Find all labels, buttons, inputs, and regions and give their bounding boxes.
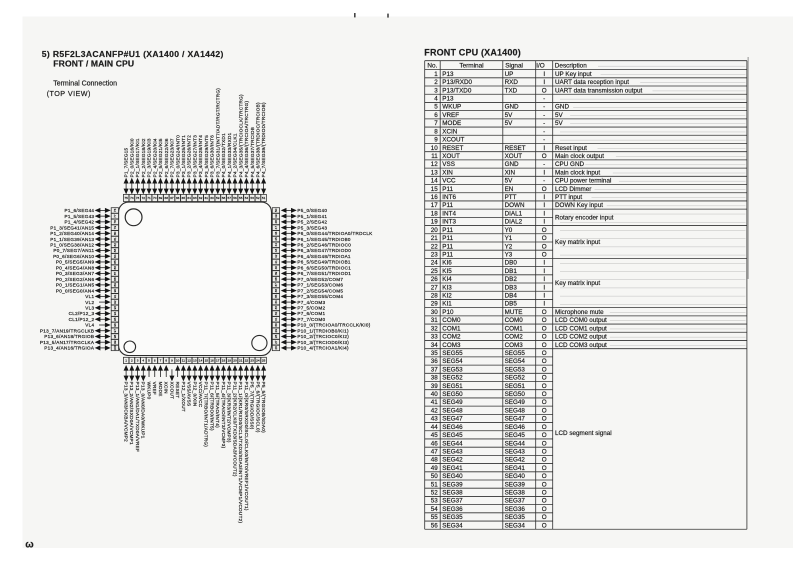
- svg-text:47: 47: [274, 226, 278, 230]
- svg-text:P2_6/SEG22/KI6: P2_6/SEG22/KI6: [164, 138, 169, 177]
- svg-text:19: 19: [431, 219, 439, 226]
- svg-text:XCIN: XCIN: [164, 382, 169, 394]
- svg-text:8: 8: [434, 128, 438, 135]
- svg-text:O: O: [542, 448, 547, 455]
- svg-text:INT3: INT3: [442, 219, 456, 226]
- svg-text:O: O: [542, 498, 547, 505]
- svg-text:O: O: [542, 186, 547, 193]
- svg-text:O: O: [542, 375, 547, 382]
- svg-text:55: 55: [431, 514, 439, 521]
- svg-text:90: 90: [113, 289, 117, 293]
- svg-text:P7_4/COM3: P7_4/COM3: [297, 300, 325, 305]
- svg-text:29: 29: [274, 329, 278, 333]
- svg-text:16: 16: [431, 194, 439, 201]
- svg-text:CPU GND: CPU GND: [555, 161, 584, 168]
- svg-text:5V: 5V: [505, 120, 514, 127]
- svg-text:INT4: INT4: [442, 210, 456, 217]
- svg-text:P6_7/SEG51/TRDIOD1: P6_7/SEG51/TRDIOD1: [297, 271, 351, 276]
- svg-text:P13_0/AN0/DA0/WKUP1: P13_0/AN0/DA0/WKUP1: [141, 382, 146, 439]
- svg-text:O: O: [542, 358, 547, 365]
- svg-text:P5_7/(TRGIOD/SS0): P5_7/(TRGIOD/SS0): [250, 382, 255, 430]
- svg-text:44: 44: [431, 424, 439, 431]
- svg-text:34: 34: [431, 342, 439, 349]
- svg-text:P13/TXD0: P13/TXD0: [442, 87, 472, 94]
- svg-text:SEG49: SEG49: [505, 399, 526, 406]
- svg-text:FRONT CPU (XA1400): FRONT CPU (XA1400): [424, 48, 521, 58]
- svg-text:46: 46: [274, 231, 278, 235]
- svg-text:O: O: [542, 366, 547, 373]
- svg-text:Y1: Y1: [505, 235, 513, 242]
- svg-text:SEG54: SEG54: [442, 358, 463, 365]
- svg-text:17: 17: [431, 202, 439, 209]
- svg-text:2: 2: [131, 359, 133, 363]
- svg-text:24: 24: [431, 260, 439, 267]
- svg-text:P10: P10: [442, 309, 454, 316]
- svg-text:25: 25: [431, 268, 439, 275]
- svg-text:P7_3/SEG55/COM4: P7_3/SEG55/COM4: [297, 294, 343, 299]
- svg-text:P11_4/(TRAIO/INT3/VCMP3): P11_4/(TRAIO/INT3/VCMP3): [221, 382, 226, 449]
- svg-text:SEG51: SEG51: [442, 383, 463, 390]
- svg-text:38: 38: [431, 375, 439, 382]
- svg-text:O: O: [542, 465, 547, 472]
- svg-text:P7_5/COM2: P7_5/COM2: [297, 306, 325, 311]
- svg-text:Key matrix input: Key matrix input: [555, 239, 600, 246]
- svg-text:XCOUT: XCOUT: [442, 137, 464, 144]
- svg-text:5: 5: [148, 359, 150, 363]
- svg-text:O: O: [542, 334, 547, 341]
- svg-text:98: 98: [113, 334, 117, 338]
- svg-text:51: 51: [262, 196, 266, 200]
- svg-text:3: 3: [434, 87, 438, 94]
- svg-text:7: 7: [434, 120, 438, 127]
- svg-text:O: O: [542, 342, 547, 349]
- svg-text:52: 52: [431, 490, 439, 497]
- svg-text:O: O: [542, 457, 547, 464]
- svg-text:43: 43: [431, 416, 439, 423]
- svg-text:71: 71: [147, 196, 151, 200]
- svg-text:KI3: KI3: [442, 284, 452, 291]
- svg-text:O: O: [542, 309, 547, 316]
- svg-text:O: O: [542, 440, 547, 447]
- svg-text:LCD COM0 output: LCD COM0 output: [555, 317, 607, 324]
- svg-text:O: O: [542, 235, 547, 242]
- svg-text:37: 37: [431, 366, 439, 373]
- svg-text:100: 100: [113, 345, 117, 350]
- svg-text:Reset input: Reset input: [555, 145, 587, 152]
- svg-text:26: 26: [431, 276, 439, 283]
- svg-text:31: 31: [274, 317, 278, 321]
- svg-text:P5_5/(TRGIOB/SDA0): P5_5/(TRGIOB/SDA0): [261, 382, 266, 434]
- svg-text:VL1: VL1: [85, 294, 94, 299]
- svg-text:7: 7: [160, 359, 162, 363]
- svg-text:CPU power terminal: CPU power terminal: [555, 178, 611, 185]
- svg-text:14: 14: [431, 178, 439, 185]
- svg-text:P5_2/SEG42: P5_2/SEG42: [297, 220, 327, 225]
- svg-text:P1_0/SEG38/AN12: P1_0/SEG38/AN12: [50, 242, 94, 247]
- svg-text:XOUT: XOUT: [505, 153, 523, 160]
- svg-text:30: 30: [274, 323, 278, 327]
- svg-text:5V: 5V: [505, 112, 514, 119]
- svg-text:51: 51: [431, 481, 439, 488]
- svg-text:31: 31: [431, 317, 439, 324]
- svg-text:I: I: [543, 260, 545, 267]
- svg-text:P1_2/SEG40/AN14: P1_2/SEG40/AN14: [50, 231, 94, 236]
- svg-text:SEG45: SEG45: [442, 432, 463, 439]
- svg-text:SEG46: SEG46: [442, 424, 463, 431]
- svg-text:45: 45: [431, 432, 439, 439]
- svg-text:DOWN Key input: DOWN Key input: [555, 202, 603, 209]
- svg-text:P11: P11: [442, 235, 453, 242]
- svg-text:96: 96: [113, 323, 117, 327]
- svg-text:SEG47: SEG47: [442, 416, 463, 423]
- svg-text:P13_2/AN2/SXD0A/VCMP1: P13_2/AN2/SXD0A/VCMP1: [129, 382, 134, 445]
- svg-text:SEG42: SEG42: [505, 457, 526, 464]
- svg-text:EN: EN: [505, 186, 514, 193]
- svg-text:P3_7/SEG31/(INT7/ADT/RGT/RCTRG: P3_7/SEG31/(INT7/ADT/RGT/RCTRG): [215, 88, 220, 178]
- svg-text:33: 33: [274, 306, 278, 310]
- svg-text:SEG42: SEG42: [442, 457, 463, 464]
- svg-text:95: 95: [113, 317, 117, 321]
- svg-text:11: 11: [431, 153, 438, 160]
- svg-text:INT6: INT6: [442, 194, 456, 201]
- svg-text:SEG36: SEG36: [505, 506, 526, 513]
- svg-text:O: O: [542, 243, 547, 250]
- svg-text:48: 48: [431, 457, 439, 464]
- svg-text:Microphone mute: Microphone mute: [555, 309, 604, 316]
- svg-text:DIAL2: DIAL2: [505, 219, 523, 226]
- svg-text:54: 54: [245, 196, 249, 200]
- svg-text:41: 41: [274, 260, 278, 264]
- svg-text:61: 61: [205, 196, 209, 200]
- svg-text:O: O: [542, 522, 547, 529]
- svg-text:Key matrix input: Key matrix input: [555, 280, 600, 287]
- svg-text:P0_6/SEG6/AN10: P0_6/SEG6/AN10: [53, 254, 94, 259]
- svg-text:P7_1/SEG53/COM6: P7_1/SEG53/COM6: [297, 283, 343, 288]
- svg-text:21: 21: [431, 235, 439, 242]
- svg-text:43: 43: [274, 249, 278, 253]
- svg-text:DIAL1: DIAL1: [505, 210, 523, 217]
- svg-text:15: 15: [205, 359, 209, 363]
- svg-text:CL1/P12_2: CL1/P12_2: [69, 317, 95, 322]
- svg-text:27: 27: [274, 340, 278, 344]
- svg-text:XIN: XIN: [442, 169, 453, 176]
- svg-text:SEG41: SEG41: [505, 465, 526, 472]
- svg-text:XCOUT: XCOUT: [169, 382, 174, 400]
- svg-text:-: -: [543, 178, 545, 185]
- svg-text:77: 77: [113, 214, 117, 218]
- svg-text:Y2: Y2: [505, 243, 513, 250]
- svg-text:P3_2/SEG26/INT2: P3_2/SEG26/INT2: [187, 135, 192, 178]
- svg-text:P0_7/SEG7/AN11: P0_7/SEG7/AN11: [53, 248, 94, 253]
- svg-text:-: -: [543, 137, 545, 144]
- svg-text:86: 86: [113, 266, 117, 270]
- svg-text:3: 3: [137, 359, 139, 363]
- svg-text:P1_6/SEG44: P1_6/SEG44: [64, 208, 94, 213]
- svg-text:SEG39: SEG39: [442, 481, 463, 488]
- svg-text:SEG48: SEG48: [442, 407, 463, 414]
- svg-text:MUTE: MUTE: [505, 309, 523, 316]
- svg-text:P11: P11: [442, 202, 453, 209]
- svg-text:DB2: DB2: [505, 276, 518, 283]
- svg-text:P0_5/SEG5/AN9: P0_5/SEG5/AN9: [56, 260, 95, 265]
- svg-text:P7_0/SEG52/COM7: P7_0/SEG52/COM7: [297, 277, 343, 282]
- svg-text:P12_1/XOUT: P12_1/XOUT: [181, 382, 186, 412]
- svg-text:5V: 5V: [505, 178, 514, 185]
- svg-text:9: 9: [434, 137, 438, 144]
- svg-text:12: 12: [187, 359, 191, 363]
- svg-text:58: 58: [222, 196, 226, 200]
- svg-text:O: O: [542, 490, 547, 497]
- svg-text:O: O: [542, 350, 547, 357]
- svg-text:P2_0/SEG16/KI0: P2_0/SEG16/KI0: [129, 138, 134, 177]
- svg-text:SEG40: SEG40: [442, 473, 463, 480]
- svg-text:P5_0/SEG40: P5_0/SEG40: [297, 208, 327, 213]
- svg-text:O: O: [542, 383, 547, 390]
- svg-text:63: 63: [193, 196, 197, 200]
- svg-text:6: 6: [154, 359, 156, 363]
- svg-text:P13: P13: [442, 96, 454, 103]
- svg-text:I: I: [543, 210, 545, 217]
- svg-text:P12_0/XIN: P12_0/XIN: [192, 382, 197, 407]
- svg-text:VREF: VREF: [442, 112, 459, 119]
- svg-text:SEG45: SEG45: [505, 432, 526, 439]
- svg-text:LCD Dimmer: LCD Dimmer: [555, 186, 591, 193]
- svg-text:19: 19: [228, 359, 232, 363]
- svg-text:VL3: VL3: [85, 306, 94, 311]
- svg-text:O: O: [542, 407, 547, 414]
- svg-text:P0_1/SEG1/AN5: P0_1/SEG1/AN5: [56, 283, 95, 288]
- svg-text:88: 88: [113, 277, 117, 281]
- svg-text:DB3: DB3: [505, 284, 518, 291]
- svg-text:13: 13: [193, 359, 197, 363]
- svg-text:52: 52: [256, 196, 260, 200]
- svg-text:74: 74: [130, 196, 134, 200]
- svg-text:P5_6/(TRGIOC/SCL0): P5_6/(TRGIOC/SCL0): [255, 382, 260, 433]
- svg-text:COM2: COM2: [442, 334, 461, 341]
- svg-text:P0_3/SEG3/AN7: P0_3/SEG3/AN7: [56, 271, 95, 276]
- svg-text:XCIN: XCIN: [442, 128, 457, 135]
- svg-text:FRONT / MAIN CPU: FRONT / MAIN CPU: [53, 59, 134, 69]
- svg-text:92: 92: [113, 300, 117, 304]
- svg-text:I: I: [543, 145, 545, 152]
- svg-text:60: 60: [210, 196, 214, 200]
- svg-text:SEG34: SEG34: [505, 522, 526, 529]
- svg-text:WKUP: WKUP: [442, 104, 461, 111]
- svg-text:36: 36: [274, 289, 278, 293]
- svg-text:35: 35: [431, 350, 439, 357]
- svg-text:O: O: [542, 481, 547, 488]
- svg-text:I: I: [543, 268, 545, 275]
- svg-text:GND: GND: [505, 161, 519, 168]
- svg-text:SEG37: SEG37: [505, 498, 526, 505]
- svg-text:P13_1/AN1/DA1/TXD0A/VREF: P13_1/AN1/DA1/TXD0A/VREF: [135, 382, 140, 453]
- svg-text:46: 46: [431, 440, 439, 447]
- svg-text:10: 10: [431, 145, 439, 152]
- svg-text:91: 91: [113, 294, 117, 298]
- svg-text:83: 83: [113, 249, 117, 253]
- svg-text:79: 79: [113, 226, 117, 230]
- svg-text:RESET: RESET: [442, 145, 463, 152]
- svg-text:I: I: [543, 194, 545, 201]
- svg-text:42: 42: [274, 254, 278, 258]
- svg-text:O: O: [542, 317, 547, 324]
- svg-text:DB5: DB5: [505, 301, 518, 308]
- svg-text:16: 16: [210, 359, 214, 363]
- svg-text:O: O: [542, 399, 547, 406]
- svg-text:56: 56: [431, 522, 439, 529]
- svg-text:P4_5/SEG37/TRCIOB: P4_5/SEG37/TRCIOB: [250, 127, 255, 178]
- svg-text:PTT input: PTT input: [555, 194, 582, 201]
- svg-text:P4_1/SEG33/RXD1: P4_1/SEG33/RXD1: [227, 132, 232, 177]
- svg-text:21: 21: [239, 359, 243, 363]
- svg-text:38: 38: [274, 277, 278, 281]
- svg-text:50: 50: [274, 208, 278, 212]
- svg-text:97: 97: [113, 329, 117, 333]
- svg-text:SEG38: SEG38: [442, 490, 463, 497]
- svg-text:I: I: [543, 276, 545, 283]
- svg-text:P10_1/(TRDIOB0/KI1): P10_1/(TRDIOB0/KI1): [297, 328, 349, 333]
- svg-text:28: 28: [431, 293, 439, 300]
- svg-text:P11_3/(KR3/INT2/VCMP3): P11_3/(KR3/INT2/VCMP3): [227, 382, 232, 443]
- svg-text:39: 39: [274, 271, 278, 275]
- svg-text:-: -: [543, 104, 545, 111]
- svg-text:COM3: COM3: [505, 342, 524, 349]
- svg-text:78: 78: [113, 220, 117, 224]
- svg-text:4: 4: [434, 96, 438, 103]
- svg-text:P5_3/SEG43: P5_3/SEG43: [297, 225, 327, 230]
- svg-text:SEG41: SEG41: [442, 465, 463, 472]
- svg-text:P0_4/SEG4/AN8: P0_4/SEG4/AN8: [56, 265, 95, 270]
- svg-text:82: 82: [113, 243, 117, 247]
- svg-text:O: O: [542, 325, 547, 332]
- svg-text:Terminal: Terminal: [459, 63, 483, 70]
- svg-text:I: I: [543, 219, 545, 226]
- svg-text:P3_4/SEG28/INT4: P3_4/SEG28/INT4: [198, 135, 203, 178]
- svg-text:94: 94: [113, 312, 117, 316]
- svg-text:P1_5/SEG43: P1_5/SEG43: [64, 214, 94, 219]
- svg-text:GND: GND: [505, 104, 519, 111]
- svg-text:SEG53: SEG53: [505, 366, 526, 373]
- svg-text:P10_0/(TRCIOA0/TRCCLK/KI0): P10_0/(TRCIOA0/TRCCLK/KI0): [297, 323, 370, 328]
- svg-text:P10_4/(TRCIOA1/KI4): P10_4/(TRCIOA1/KI4): [297, 346, 349, 351]
- svg-text:I: I: [543, 293, 545, 300]
- svg-text:P10_3/(TRCIOD0/KI3): P10_3/(TRCIOD0/KI3): [297, 340, 349, 345]
- svg-text:CL2/P12_3: CL2/P12_3: [69, 311, 95, 316]
- svg-text:28: 28: [274, 334, 278, 338]
- svg-text:76: 76: [113, 208, 117, 212]
- svg-text:35: 35: [274, 294, 278, 298]
- svg-text:VL4: VL4: [85, 323, 94, 328]
- svg-text:P3_1/SEG25/INT1: P3_1/SEG25/INT1: [181, 135, 186, 178]
- svg-text:-: -: [543, 112, 545, 119]
- svg-text:57: 57: [228, 196, 232, 200]
- svg-text:SEG44: SEG44: [442, 440, 463, 447]
- svg-text:O: O: [542, 227, 547, 234]
- svg-text:Terminal Connection: Terminal Connection: [53, 81, 117, 88]
- svg-text:12: 12: [431, 161, 439, 168]
- svg-text:SEG52: SEG52: [442, 375, 463, 382]
- svg-text:37: 37: [274, 283, 278, 287]
- svg-text:LCD COM1 output: LCD COM1 output: [555, 325, 607, 332]
- svg-text:50: 50: [431, 473, 439, 480]
- svg-text:45: 45: [274, 237, 278, 241]
- svg-text:84: 84: [113, 254, 117, 258]
- svg-text:KI1: KI1: [442, 301, 452, 308]
- svg-text:I: I: [543, 169, 545, 176]
- svg-text:VCC: VCC: [442, 178, 456, 185]
- svg-text:44: 44: [274, 243, 278, 247]
- svg-text:40: 40: [431, 391, 439, 398]
- svg-text:SEG35: SEG35: [505, 514, 526, 521]
- svg-text:P13: P13: [442, 71, 454, 78]
- svg-text:P6_4/SEG48/TRDIOA1: P6_4/SEG48/TRDIOA1: [297, 254, 351, 259]
- svg-text:48: 48: [274, 220, 278, 224]
- svg-text:SEG49: SEG49: [442, 399, 463, 406]
- svg-text:SEG38: SEG38: [505, 490, 526, 497]
- svg-text:P2_3/SEG19/KI3: P2_3/SEG19/KI3: [147, 138, 152, 177]
- svg-text:VSS/AVSS: VSS/AVSS: [187, 382, 192, 407]
- svg-text:59: 59: [216, 196, 220, 200]
- svg-text:1: 1: [434, 71, 438, 78]
- svg-text:5) R5F2L3ACANFP#U1 (XA1400 / X: 5) R5F2L3ACANFP#U1 (XA1400 / XA1442): [42, 49, 224, 59]
- svg-text:DB1: DB1: [505, 268, 518, 275]
- svg-text:P2_4/SEG20/KI4: P2_4/SEG20/KI4: [152, 138, 157, 177]
- svg-text:P6_1/SEG45/TRDIOB0: P6_1/SEG45/TRDIOB0: [297, 237, 351, 242]
- svg-text:P11_1/(KR1/RXD0/SCL3/TXD3/SDA3: P11_1/(KR1/RXD0/SCL3/TXD3/SDA3/INT1/VCMP…: [238, 382, 243, 524]
- svg-text:SEG53: SEG53: [442, 366, 463, 373]
- svg-text:SEG34: SEG34: [442, 522, 463, 529]
- svg-text:O: O: [542, 432, 547, 439]
- svg-text:UART data reception input: UART data reception input: [555, 79, 629, 86]
- svg-text:67: 67: [170, 196, 174, 200]
- svg-text:18: 18: [431, 210, 439, 217]
- svg-text:P4_2/SEG34/CLK1: P4_2/SEG34/CLK1: [233, 133, 238, 177]
- svg-text:41: 41: [431, 399, 439, 406]
- svg-text:P11: P11: [442, 243, 453, 250]
- svg-text:SEG54: SEG54: [505, 358, 526, 365]
- svg-text:DB0: DB0: [505, 260, 518, 267]
- svg-text:P6_3/SEG47/TRDIOD0: P6_3/SEG47/TRDIOD0: [297, 248, 351, 253]
- svg-text:27: 27: [431, 284, 439, 291]
- svg-text:47: 47: [431, 448, 439, 455]
- svg-text:P7_6/COM1: P7_6/COM1: [297, 311, 325, 316]
- svg-text:O: O: [542, 506, 547, 513]
- svg-text:WKUP0: WKUP0: [146, 382, 151, 400]
- svg-text:SEG39: SEG39: [505, 481, 526, 488]
- svg-text:2: 2: [434, 79, 438, 86]
- svg-text:O: O: [542, 416, 547, 423]
- svg-text:RESET: RESET: [505, 145, 526, 152]
- svg-text:COM1: COM1: [505, 325, 524, 332]
- svg-text:49: 49: [274, 214, 278, 218]
- svg-text:Description: Description: [555, 63, 587, 70]
- svg-text:KI6: KI6: [442, 260, 452, 267]
- svg-text:P6_5/SEG49/TRDIOB1: P6_5/SEG49/TRDIOB1: [297, 260, 351, 265]
- svg-text:P11_7/(TRBO/INT1/ADTRG): P11_7/(TRBO/INT1/ADTRG): [204, 382, 209, 448]
- svg-text:Y3: Y3: [505, 251, 513, 258]
- svg-text:17: 17: [216, 359, 220, 363]
- svg-text:P11: P11: [442, 251, 453, 258]
- svg-text:P3_6/SEG30/INT6: P3_6/SEG30/INT6: [210, 135, 215, 178]
- svg-text:COM3: COM3: [442, 342, 461, 349]
- svg-text:RXD: RXD: [505, 79, 519, 86]
- svg-text:SEG37: SEG37: [442, 498, 463, 505]
- svg-text:13: 13: [431, 169, 439, 176]
- svg-text:TXD: TXD: [505, 87, 518, 94]
- svg-text:P1_7/SEG15: P1_7/SEG15: [124, 147, 129, 177]
- svg-text:P13_5/AN17/TRGCLKA: P13_5/AN17/TRGCLKA: [40, 340, 95, 345]
- svg-text:SEG43: SEG43: [442, 448, 463, 455]
